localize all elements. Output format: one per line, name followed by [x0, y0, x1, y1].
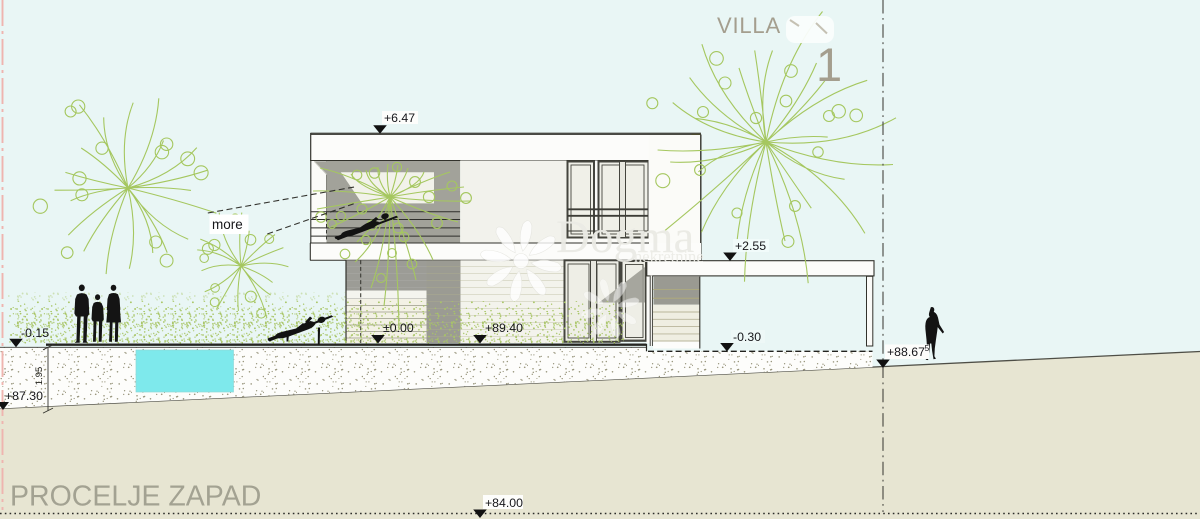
svg-text:-0.30: -0.30 — [733, 330, 761, 344]
svg-text:1: 1 — [816, 38, 842, 91]
svg-text:-0.15: -0.15 — [21, 326, 49, 340]
svg-text:1.95: 1.95 — [34, 367, 45, 386]
svg-text:+87.30: +87.30 — [5, 389, 43, 403]
svg-text:VILLA: VILLA — [717, 13, 781, 38]
svg-text:more: more — [212, 217, 243, 232]
svg-text:+88.67: +88.67 — [887, 345, 925, 359]
svg-text:+6.47: +6.47 — [384, 111, 415, 125]
svg-text:+2.55: +2.55 — [735, 239, 766, 253]
svg-text:5: 5 — [925, 343, 930, 353]
svg-text:PROCELJE ZAPAD: PROCELJE ZAPAD — [10, 481, 261, 513]
svg-text:+84.00: +84.00 — [485, 496, 523, 510]
svg-text:nekretnine: nekretnine — [634, 247, 704, 266]
svg-text:+89.40: +89.40 — [485, 321, 523, 335]
svg-text:±0.00: ±0.00 — [383, 321, 414, 335]
